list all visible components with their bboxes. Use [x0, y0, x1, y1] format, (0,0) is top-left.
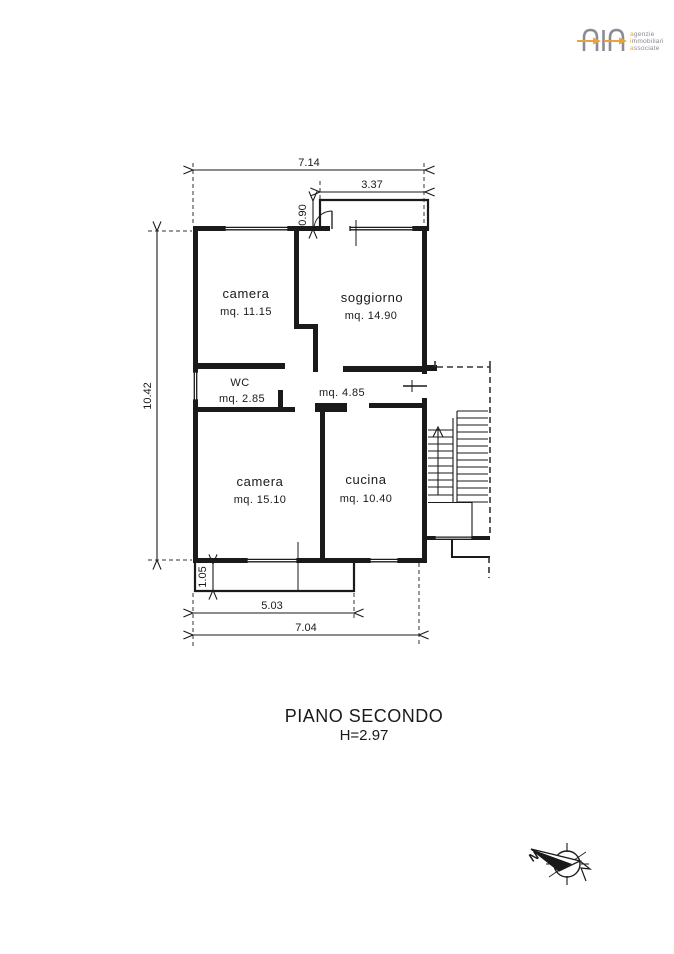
window-stairwell-bottom [435, 536, 472, 540]
room-cucina-name: cucina [345, 472, 386, 487]
dim-balcony-top-width: 3.37 [361, 179, 382, 191]
room-wc-area: mq. 2.85 [219, 393, 265, 405]
dim-width-bottom: 7.04 [295, 622, 316, 634]
logo-word-3: associate [630, 45, 660, 52]
floor-height: H=2.97 [340, 727, 389, 744]
stair-treads-left-flight [428, 430, 453, 495]
window-soggiorno-top [350, 226, 413, 231]
room-camera2-area: mq. 15.10 [234, 494, 287, 506]
room-camera2-name: camera [237, 474, 284, 489]
room-camera1-area: mq. 11.15 [220, 306, 272, 318]
room-wc-name: WC [230, 377, 249, 389]
window-camera2-bottom [247, 558, 297, 563]
window-camera1-top [225, 226, 288, 231]
staircase [428, 411, 490, 557]
room-corridoio-area: mq. 4.85 [319, 387, 365, 399]
dimensions: 7.14 3.37 0.90 10.42 1.05 5.03 7.04 [142, 157, 425, 635]
dim-balcony-top-depth: 0.90 [297, 204, 309, 225]
caption: PIANO SECONDO H=2.97 [285, 706, 444, 744]
stair-step-out [452, 540, 490, 557]
dim-width-top: 7.14 [298, 157, 319, 169]
logo-mark [577, 30, 627, 51]
logo-word-2: immobiliari [630, 38, 664, 45]
stair-treads-right-flight [457, 411, 488, 502]
floorplan-drawing: agenzie immobiliari associate [0, 0, 674, 954]
balcony-bottom-outline [195, 563, 354, 591]
room-soggiorno-name: soggiorno [341, 290, 404, 305]
stairwell-boundary-dashed [435, 361, 490, 578]
agency-logo: agenzie immobiliari associate [577, 30, 664, 52]
window-wc-left [193, 372, 198, 400]
window-cucina-bottom [370, 558, 398, 563]
dim-balcony-bottom-depth: 1.05 [197, 566, 209, 587]
balcony-top-outline [320, 200, 428, 231]
floor-title: PIANO SECONDO [285, 706, 444, 726]
dim-height-left: 10.42 [142, 382, 154, 410]
room-labels: camera mq. 11.15 soggiorno mq. 14.90 WC … [219, 286, 403, 506]
room-camera1-name: camera [223, 286, 270, 301]
stair-center-wall [453, 411, 457, 502]
room-soggiorno-area: mq. 14.90 [345, 310, 398, 322]
floorplan-page: agenzie immobiliari associate [0, 0, 674, 954]
room-cucina-area: mq. 10.40 [340, 493, 393, 505]
logo-word-1: agenzie [630, 31, 655, 38]
stairwell-door [403, 380, 427, 392]
stair-landing [428, 503, 472, 537]
dim-balcony-bottom-width: 5.03 [261, 600, 282, 612]
compass: N [526, 843, 590, 885]
